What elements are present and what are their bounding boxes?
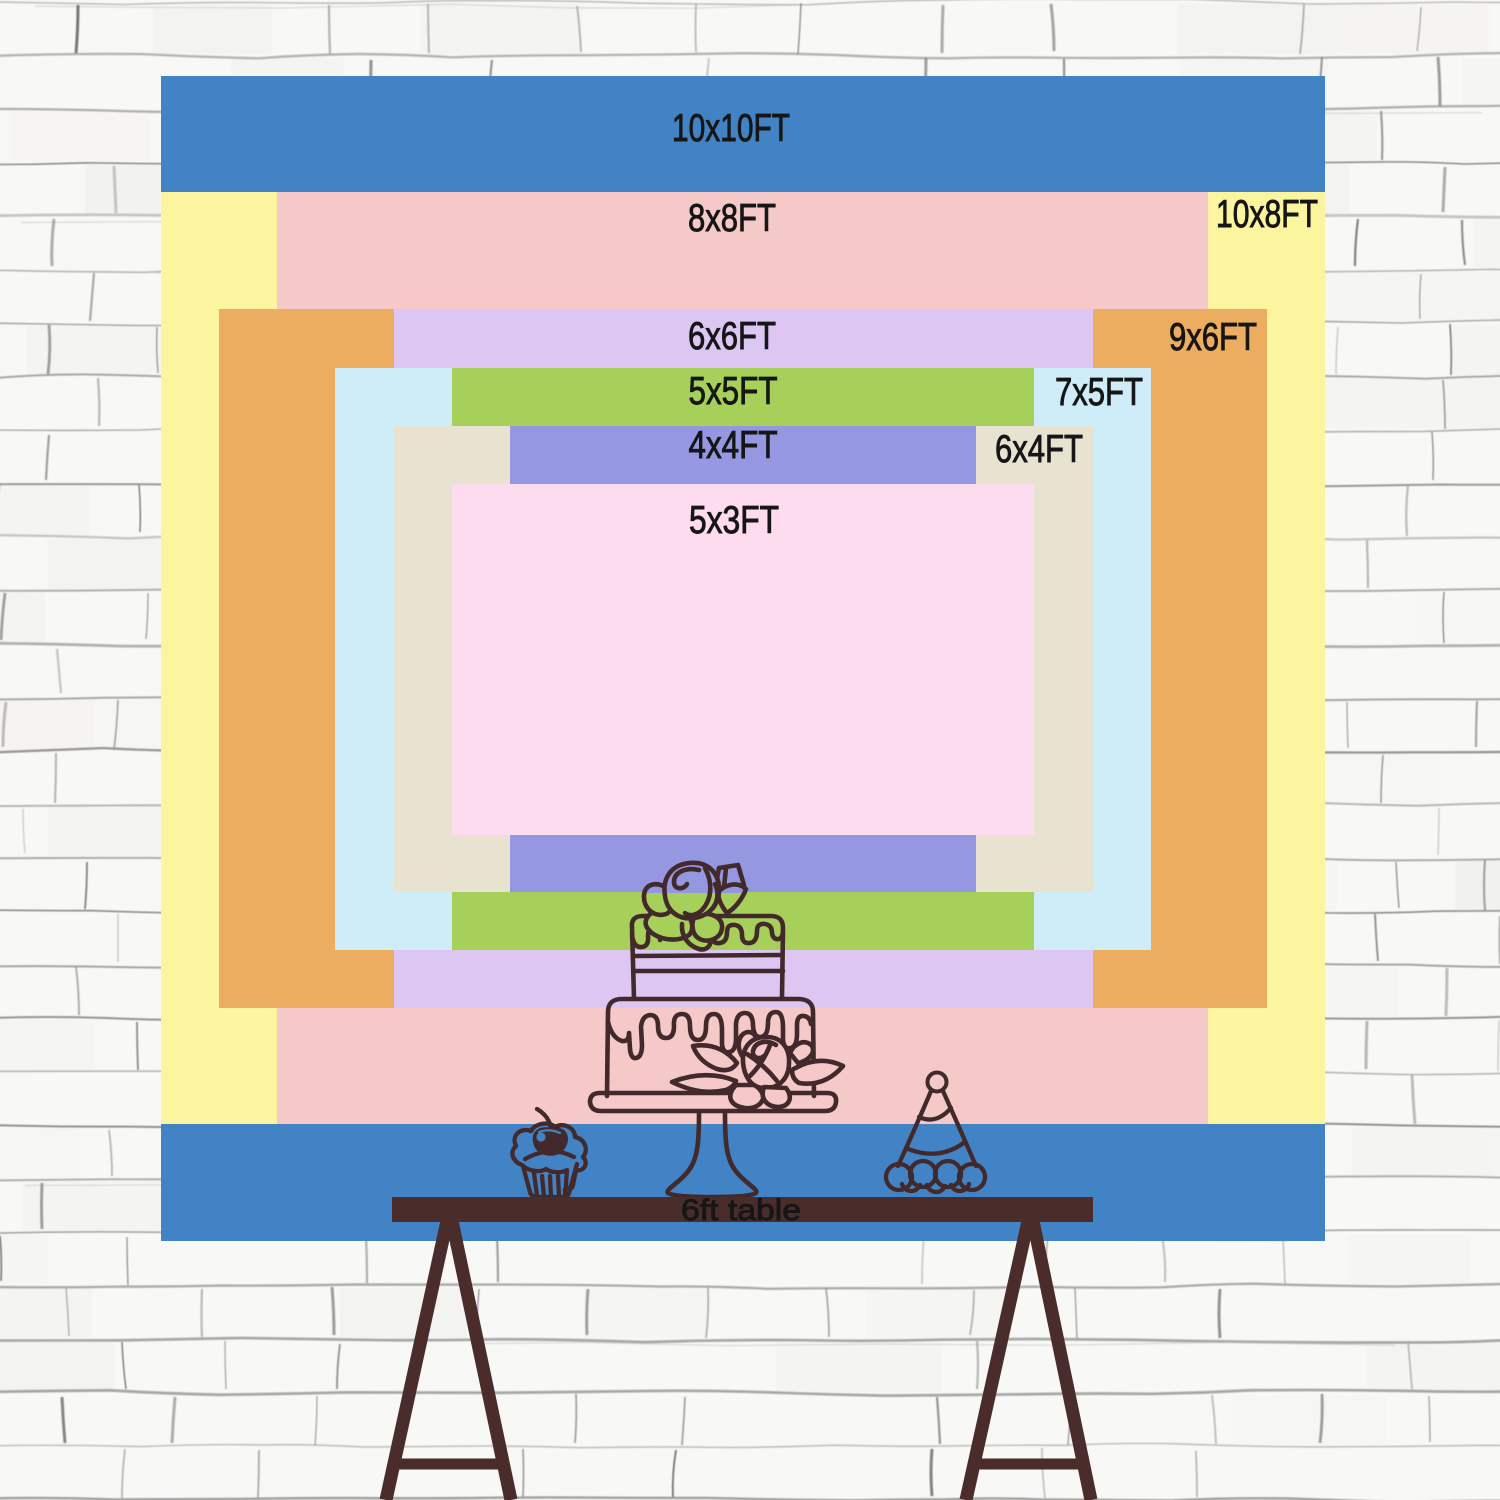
svg-text:10x8FT: 10x8FT [1216, 193, 1318, 236]
svg-text:5x3FT: 5x3FT [689, 499, 779, 542]
svg-text:6x4FT: 6x4FT [995, 428, 1083, 471]
svg-text:6ft table: 6ft table [681, 1194, 801, 1227]
svg-text:6x6FT: 6x6FT [688, 315, 776, 358]
svg-text:9x6FT: 9x6FT [1169, 316, 1257, 359]
svg-text:5x5FT: 5x5FT [689, 370, 778, 413]
svg-text:10x10FT: 10x10FT [672, 107, 790, 150]
svg-text:4x4FT: 4x4FT [689, 424, 778, 467]
svg-text:7x5FT: 7x5FT [1055, 371, 1143, 414]
svg-text:8x8FT: 8x8FT [688, 197, 776, 240]
